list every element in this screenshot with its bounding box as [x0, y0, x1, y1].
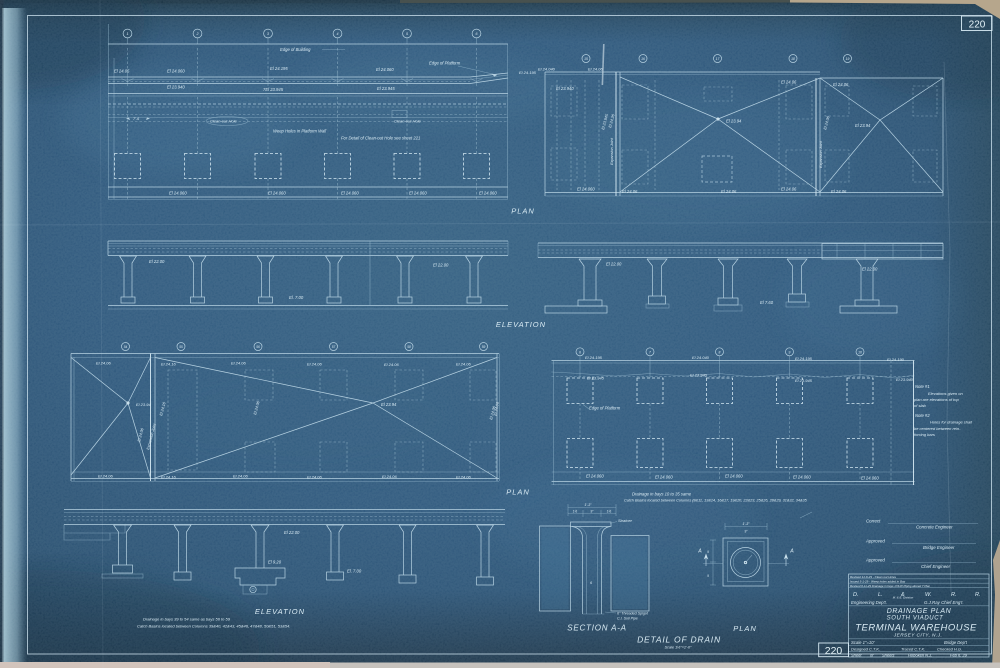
svg-text:Clean-out Hole: Clean-out Hole [210, 119, 237, 124]
svg-text:Issued 5-1-29 - Weep holes add: Issued 5-1-29 - Weep holes added in Bay [850, 579, 906, 583]
svg-text:Feb 6, 29: Feb 6, 29 [950, 652, 968, 657]
svg-text:El 24.060: El 24.060 [268, 191, 286, 196]
svg-text:El 24.060: El 24.060 [479, 191, 497, 196]
svg-text:of slab: of slab [914, 403, 927, 408]
svg-text:JERSEY CITY, N.J.: JERSEY CITY, N.J. [893, 632, 942, 638]
svg-text:DETAIL OF DRAIN: DETAIL OF DRAIN [637, 635, 721, 645]
svg-text:El 24.060: El 24.060 [376, 67, 394, 72]
svg-text:Chief Engineer: Chief Engineer [921, 564, 951, 569]
svg-text:El 24.060: El 24.060 [861, 476, 879, 481]
svg-text:19: 19 [846, 57, 850, 61]
svg-text:Weep Holes in Platform Wall: Weep Holes in Platform Wall [273, 129, 327, 134]
svg-text:be centered between rein-: be centered between rein- [914, 426, 961, 431]
svg-text:Note #2: Note #2 [915, 413, 930, 418]
svg-text:16: 16 [641, 57, 645, 61]
svg-text:El 24.06: El 24.06 [307, 475, 322, 480]
svg-text:Traced C.T.K.: Traced C.T.K. [901, 646, 925, 651]
svg-text:3: 3 [267, 32, 269, 36]
svg-text:El 24.06: El 24.06 [233, 474, 248, 479]
svg-text:9: 9 [789, 351, 791, 355]
svg-text:5: 5 [406, 32, 408, 36]
svg-text:El 24.060: El 24.060 [167, 69, 185, 74]
svg-text:Holes for drainage shall: Holes for drainage shall [930, 420, 972, 425]
svg-text:El 24.060: El 24.060 [793, 475, 811, 480]
svg-text:6: 6 [579, 351, 581, 355]
svg-text:El 24.06: El 24.06 [456, 475, 471, 480]
svg-text:ELEVATION: ELEVATION [496, 320, 546, 329]
svg-text:1½: 1½ [573, 510, 578, 514]
svg-text:Engineering Dep't.: Engineering Dep't. [851, 600, 887, 605]
svg-text:1'-3": 1'-3" [584, 503, 592, 507]
svg-text:El 24.060: El 24.060 [586, 474, 604, 479]
svg-text:Hoboken N.J.: Hoboken N.J. [908, 652, 932, 657]
svg-text:A: A [697, 549, 702, 555]
svg-text:17: 17 [716, 57, 720, 61]
svg-text:M. & E. Division: M. & E. Division [893, 596, 914, 600]
svg-text:SECTION A-A: SECTION A-A [567, 624, 627, 633]
svg-text:El 23.940: El 23.940 [556, 86, 574, 91]
svg-text:El 24.16: El 24.16 [161, 362, 176, 367]
svg-text:El 24.06: El 24.06 [96, 361, 111, 366]
svg-text:Drainage in bays 39 to 54 same: Drainage in bays 39 to 54 same as bays 5… [143, 617, 231, 622]
svg-text:9: 9 [707, 550, 709, 554]
svg-text:9: 9 [707, 574, 709, 578]
svg-text:El 23.940: El 23.940 [167, 85, 185, 90]
svg-text:PLAN: PLAN [506, 488, 530, 497]
svg-text:El 23.945: El 23.945 [377, 86, 395, 91]
svg-text:Revised 12-6-29 - Clean out Ho: Revised 12-6-29 - Clean out Holes [850, 575, 897, 579]
svg-text:220: 220 [825, 645, 843, 657]
svg-text:El 24.060: El 24.060 [409, 191, 427, 196]
svg-text:El 23.945: El 23.945 [795, 378, 813, 383]
svg-text:El 24.195: El 24.195 [795, 356, 813, 361]
svg-text:El 24.06: El 24.06 [622, 189, 638, 194]
svg-text:plan are elevations of top: plan are elevations of top [913, 397, 959, 402]
svg-text:C.I. Soil Pipe: C.I. Soil Pipe [617, 617, 638, 621]
svg-text:1'-3": 1'-3" [742, 522, 750, 526]
svg-text:El 24.06: El 24.06 [382, 474, 397, 479]
svg-text:Sheets: Sheets [882, 652, 894, 657]
svg-text:El 24.190: El 24.190 [887, 357, 905, 362]
svg-text:El 22.00: El 22.00 [149, 259, 165, 264]
svg-text:El 23.94: El 23.94 [381, 402, 397, 407]
svg-text:Drainage in bays 10 to 35 same: Drainage in bays 10 to 35 same [632, 492, 692, 497]
svg-text:R.: R. [951, 592, 957, 598]
svg-text:Clean-out Hole: Clean-out Hole [394, 119, 421, 124]
svg-text:El 24.06: El 24.06 [588, 67, 603, 72]
svg-text:7El 23.945: 7El 23.945 [263, 87, 284, 92]
svg-text:ELEVATION: ELEVATION [255, 607, 305, 616]
svg-text:El 24.06: El 24.06 [721, 189, 737, 194]
svg-text:220: 220 [969, 20, 986, 31]
svg-text:57: 57 [332, 345, 336, 349]
svg-text:1½: 1½ [607, 510, 612, 514]
svg-text:El 24.195: El 24.195 [519, 70, 537, 75]
svg-text:55: 55 [179, 345, 183, 349]
svg-text:Scale 1½"=1'-0": Scale 1½"=1'-0" [665, 646, 693, 650]
svg-text:El 22.00: El 22.00 [433, 263, 449, 268]
svg-text:56: 56 [256, 345, 260, 349]
svg-text:El 24.06: El 24.06 [456, 362, 471, 367]
svg-text:7: 7 [649, 351, 651, 355]
svg-text:Edge of Platform: Edge of Platform [429, 61, 461, 66]
svg-text:TERMINAL WAREHOUSE: TERMINAL WAREHOUSE [855, 623, 977, 634]
svg-text:El 22.00: El 22.00 [284, 530, 300, 535]
svg-text:Expansion Joint: Expansion Joint [819, 140, 823, 168]
svg-text:El 23.94: El 23.94 [726, 119, 742, 124]
svg-text:54: 54 [124, 345, 128, 349]
svg-text:El 24.06: El 24.06 [231, 361, 246, 366]
svg-text:For Detail of Clean-out Hole s: For Detail of Clean-out Hole see sheet 2… [341, 136, 420, 141]
svg-text:6" Threaded Spigot: 6" Threaded Spigot [617, 612, 649, 616]
svg-text:Checked H.G.: Checked H.G. [937, 646, 962, 651]
svg-text:forcing bars: forcing bars [914, 432, 935, 437]
svg-text:7'-6: 7'-6 [133, 117, 140, 121]
svg-text:10: 10 [858, 351, 862, 355]
svg-text:El 24.06: El 24.06 [307, 362, 322, 367]
svg-text:58: 58 [407, 345, 411, 349]
svg-text:R.: R. [975, 592, 981, 598]
svg-text:El 24.040: El 24.040 [538, 67, 556, 72]
svg-text:El 23.94: El 23.94 [855, 123, 871, 128]
svg-text:L.: L. [878, 592, 883, 598]
svg-text:El 9.20: El 9.20 [268, 560, 282, 565]
svg-text:El 7.60: El 7.60 [760, 300, 774, 305]
svg-text:El 23.940: El 23.940 [690, 373, 708, 378]
svg-text:Designed C.T.K.: Designed C.T.K. [851, 646, 880, 651]
svg-text:SOUTH VIADUCT: SOUTH VIADUCT [887, 616, 945, 622]
svg-text:El. 7.00: El. 7.00 [347, 569, 362, 574]
svg-text:Approved: Approved [865, 558, 885, 563]
svg-text:El 22.00: El 22.00 [606, 262, 622, 267]
svg-text:Concrete Engineer: Concrete Engineer [916, 525, 953, 530]
svg-text:El 24.16: El 24.16 [161, 475, 176, 480]
svg-text:El 24.060: El 24.060 [577, 187, 595, 192]
svg-text:Sheet: Sheet [851, 652, 862, 657]
svg-text:6: 6 [476, 32, 478, 36]
svg-text:Strainer: Strainer [618, 518, 633, 523]
svg-text:El 24.06: El 24.06 [781, 80, 797, 85]
svg-text:15: 15 [584, 57, 588, 61]
svg-text:G.J.Ray Chief Eng'r.: G.J.Ray Chief Eng'r. [924, 600, 964, 605]
svg-text:El 23.940: El 23.940 [896, 377, 914, 382]
svg-text:Approved: Approved [865, 539, 885, 544]
svg-text:Expansion Joint: Expansion Joint [610, 137, 614, 165]
svg-text:El 23.94: El 23.94 [136, 402, 151, 407]
svg-text:El 24.060: El 24.060 [725, 474, 743, 479]
svg-text:El 24.060: El 24.060 [655, 475, 673, 480]
svg-text:18: 18 [791, 57, 795, 61]
svg-text:El 24.06: El 24.06 [384, 362, 399, 367]
svg-text:Bridge Engineer: Bridge Engineer [923, 545, 955, 550]
svg-text:Note #1: Note #1 [915, 384, 930, 389]
svg-text:DRAINAGE PLAN: DRAINAGE PLAN [887, 608, 952, 615]
svg-text:El 24.06: El 24.06 [98, 474, 113, 479]
svg-text:Edge of Building: Edge of Building [280, 47, 311, 52]
svg-text:Catch Basins located between C: Catch Basins located between Columns 39&… [137, 624, 290, 629]
svg-text:El 22.00: El 22.00 [862, 267, 878, 272]
svg-text:Elevations given on: Elevations given on [928, 391, 963, 396]
svg-text:El 24.060: El 24.060 [341, 191, 359, 196]
svg-text:1: 1 [127, 32, 129, 36]
svg-text:Correct: Correct [866, 519, 881, 524]
svg-text:59: 59 [482, 345, 486, 349]
svg-text:Edge of Platform: Edge of Platform [589, 406, 621, 411]
svg-text:Catch Basins located between C: Catch Basins located between Columns (8&… [624, 499, 808, 503]
svg-text:Bridge Dep't: Bridge Dep't [944, 640, 968, 645]
svg-text:D.: D. [853, 592, 859, 598]
svg-text:PLAN: PLAN [733, 624, 757, 633]
svg-text:Scale 1"=10': Scale 1"=10' [851, 640, 875, 645]
svg-text:4: 4 [337, 32, 339, 36]
svg-text:El. 7.00: El. 7.00 [289, 295, 304, 300]
svg-text:A: A [789, 549, 794, 555]
svg-text:El 24.195: El 24.195 [270, 66, 288, 71]
svg-text:El 24.195: El 24.195 [585, 355, 603, 360]
svg-text:Revised 6-11-29 Drainage in ba: Revised 6-11-29 Drainage in bays 17&18 P… [850, 584, 931, 588]
svg-text:El 24.06: El 24.06 [831, 189, 847, 194]
svg-text:2: 2 [196, 32, 199, 36]
svg-text:El 24.06: El 24.06 [781, 187, 797, 192]
svg-text:8: 8 [719, 351, 721, 355]
svg-text:El 24.040: El 24.040 [692, 355, 710, 360]
svg-text:El 24.060: El 24.060 [169, 191, 187, 196]
svg-text:PLAN: PLAN [511, 207, 535, 216]
svg-text:W.: W. [925, 592, 932, 598]
